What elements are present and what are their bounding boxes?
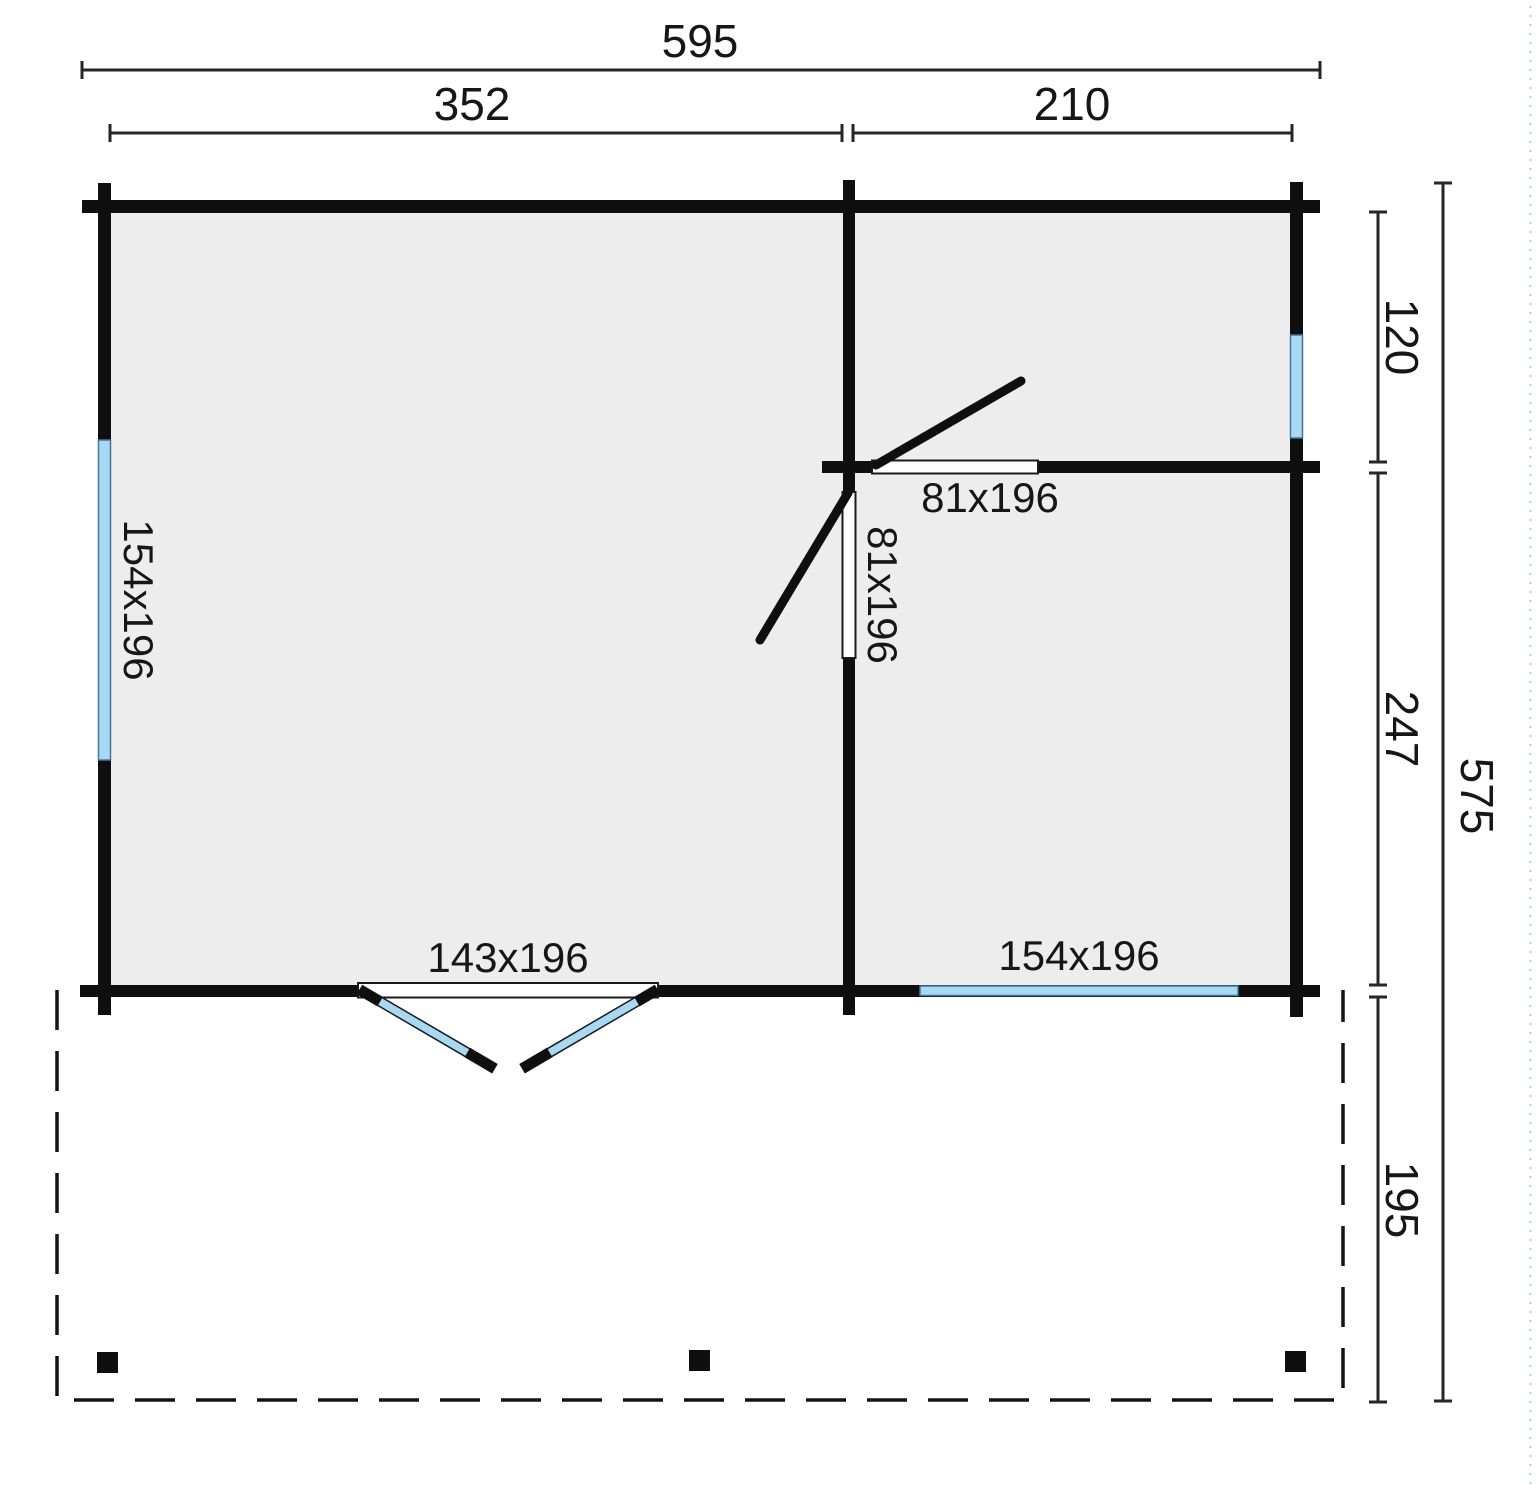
floor-plan: 595 352 210 120 247 195 575 154x196 81x1… [0,0,1536,1485]
door-leaf-glass [375,996,471,1057]
label-left-window: 154x196 [115,519,162,680]
door-leaf-glass [546,996,642,1057]
window-left [99,440,111,760]
dim-label-right-section-width: 210 [1034,78,1111,130]
label-interior-door-top: 81x196 [921,474,1059,521]
wall-right [1290,182,1303,1017]
dim-label-top-room-depth: 120 [1376,299,1428,376]
dim-label-terrace-depth: 195 [1376,1162,1428,1239]
floor-area [104,206,1296,990]
door-leaf-tip-cap [519,1048,552,1074]
floor-plan-page: 595 352 210 120 247 195 575 154x196 81x1… [0,0,1536,1485]
window-front [920,986,1238,996]
dim-label-overall-width: 595 [662,15,739,67]
door-leaf-tip-cap [465,1048,498,1074]
dim-line-overall-depth [1434,183,1452,1401]
terrace-post-right [1285,1351,1306,1372]
label-interior-door-side: 81x196 [859,526,906,664]
label-front-window: 154x196 [998,932,1159,979]
dim-label-overall-depth: 575 [1451,758,1503,835]
terrace-group [57,990,1343,1400]
terrace-outline [57,990,1343,1400]
terrace-post-left [97,1352,118,1373]
label-front-double-door: 143x196 [427,934,588,981]
dim-label-bottom-room-depth: 247 [1376,691,1428,768]
window-right [1291,335,1303,438]
opening-front-double-door [358,983,658,998]
opening-interior-door-top [872,461,1038,474]
dim-label-left-section-width: 352 [434,78,511,130]
opening-interior-door-side [843,492,856,658]
terrace-post-middle [689,1350,710,1371]
wall-top [82,200,1320,213]
